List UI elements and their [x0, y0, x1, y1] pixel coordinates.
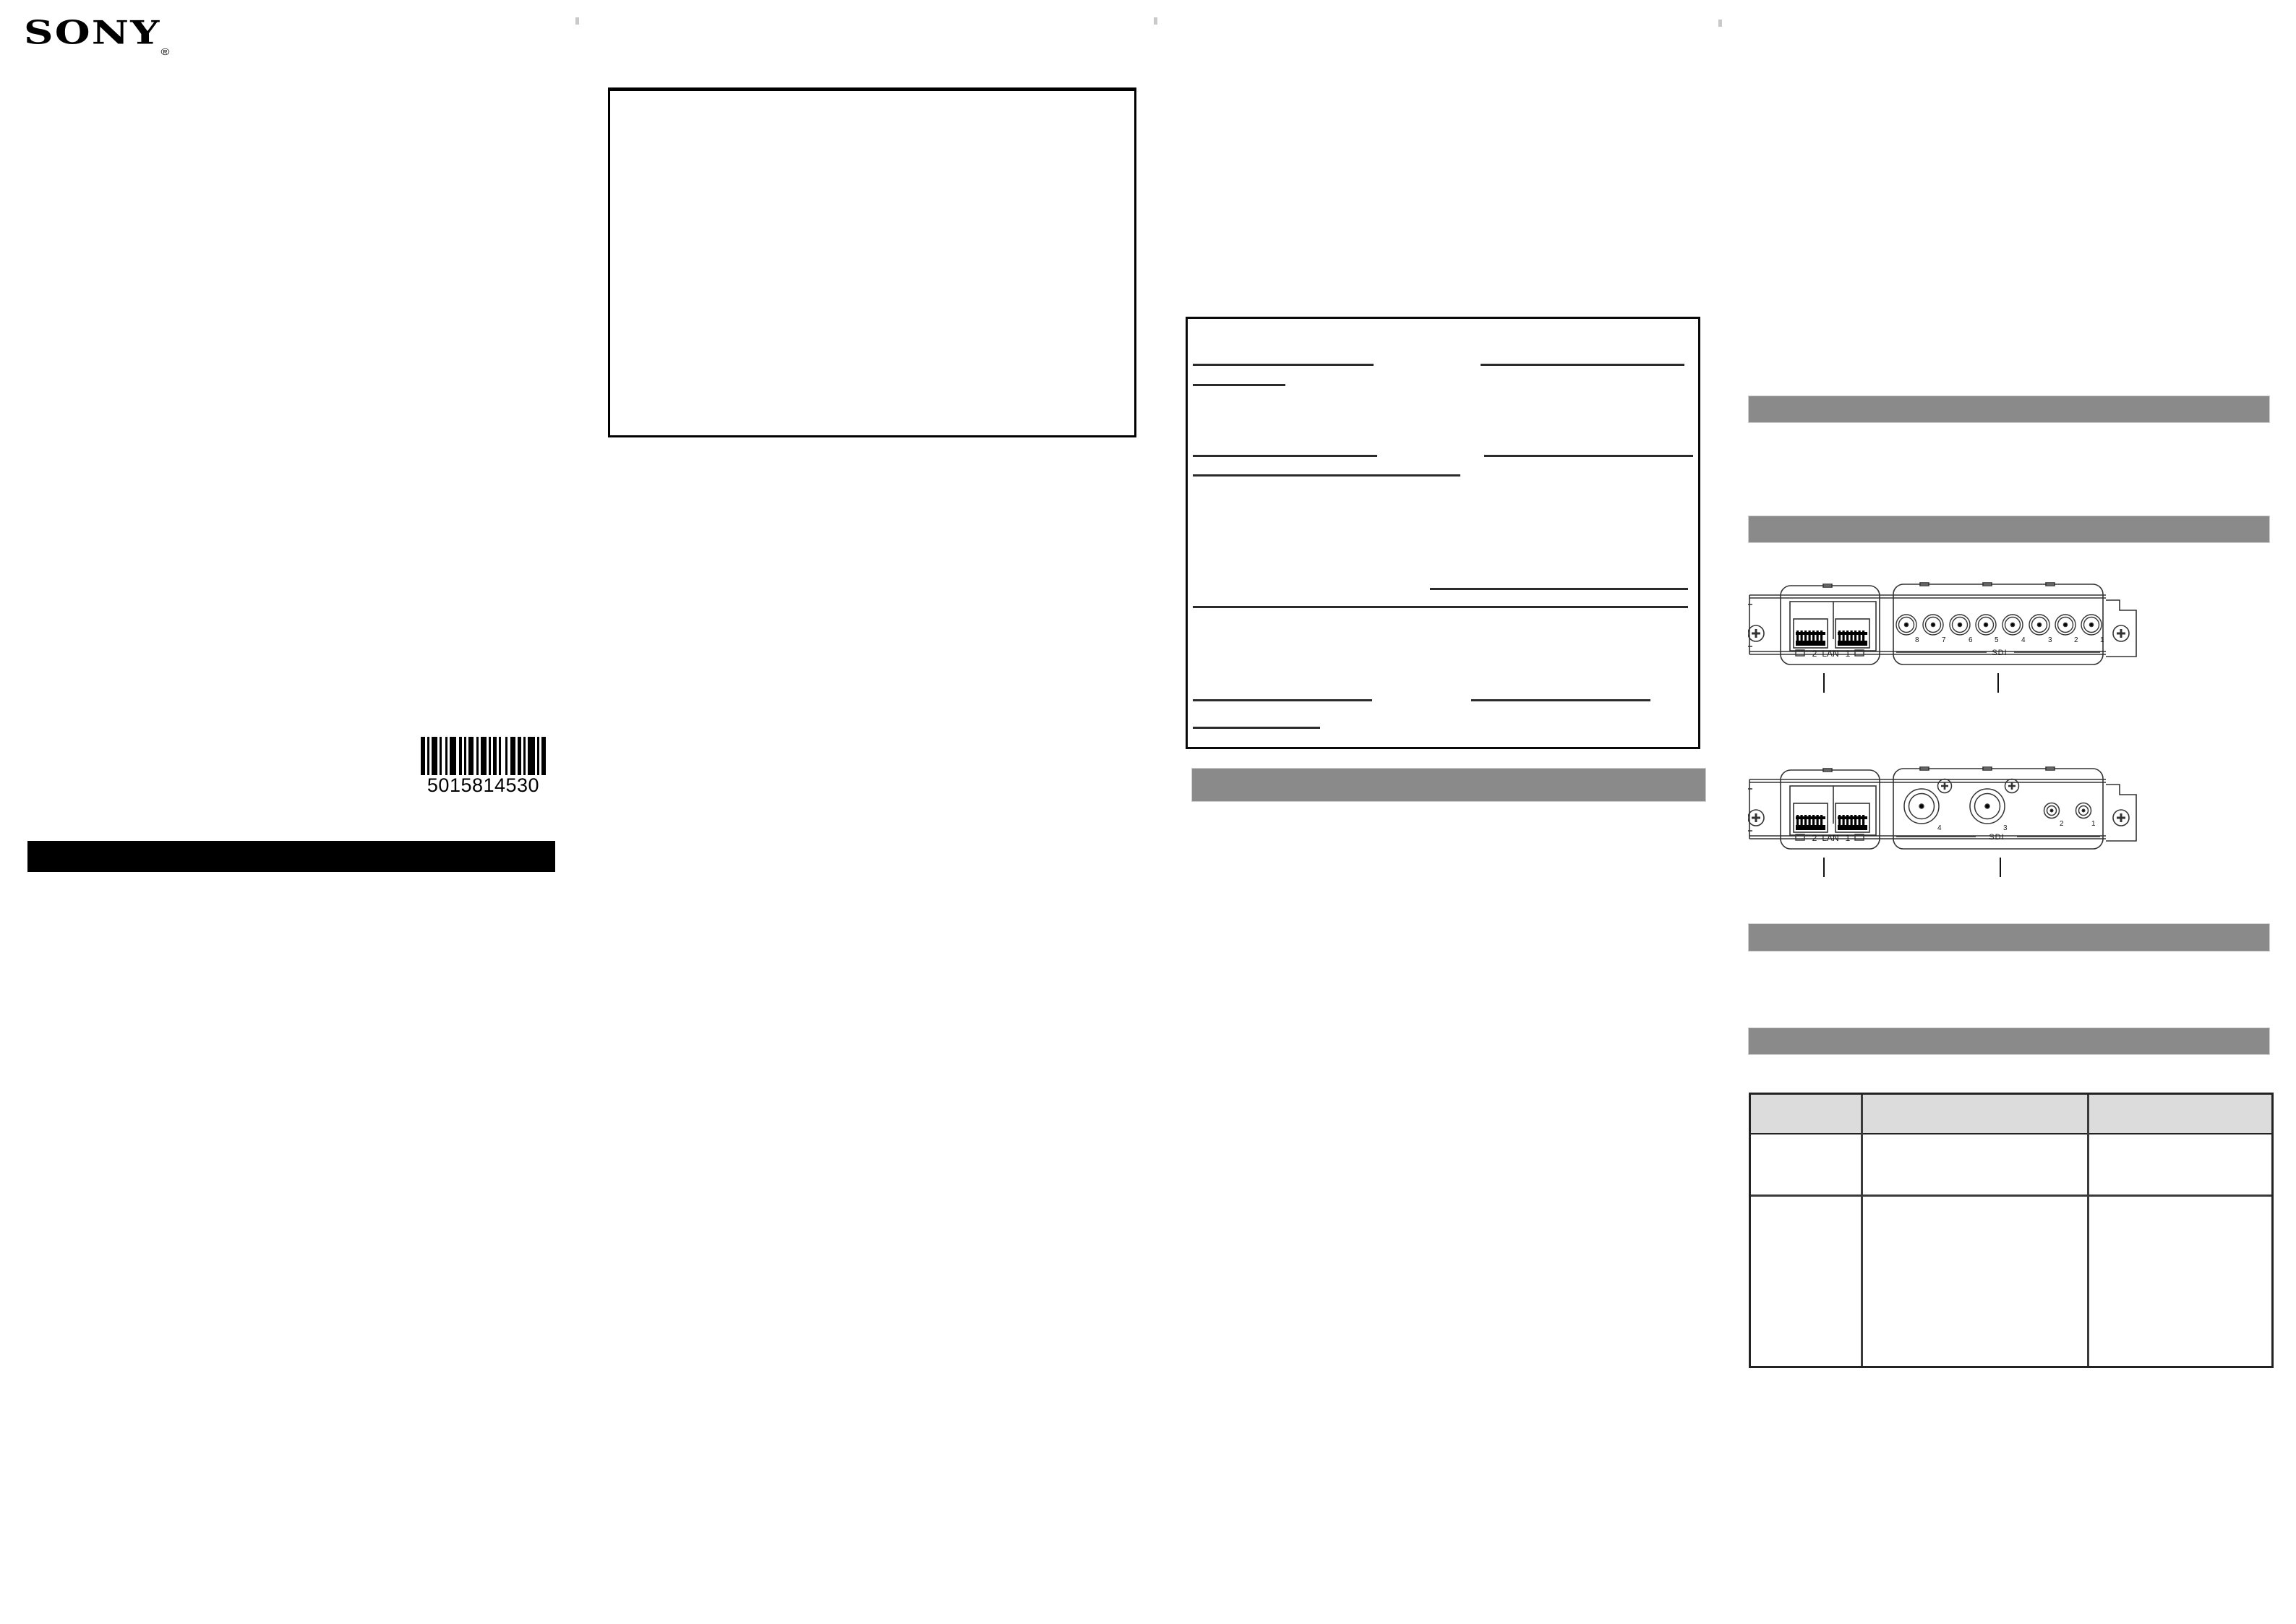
print-registration-mark	[1718, 20, 1722, 27]
svg-text:1: 1	[2100, 636, 2104, 644]
svg-text:4: 4	[1937, 824, 1942, 832]
spec-table	[1749, 1093, 2274, 1368]
barcode-number: 5015814530	[421, 775, 546, 795]
form-blank-line	[1484, 455, 1693, 457]
svg-text:6: 6	[1969, 636, 1973, 644]
svg-text:8: 8	[1915, 636, 1919, 644]
sdi-label: SDI	[1992, 649, 2007, 657]
svg-text:1: 1	[2091, 820, 2096, 828]
section-heading-bar	[1191, 768, 1706, 802]
rear-panel-diagram-4ch: 2 LAN 1 4 3 2 1 SDI	[1748, 761, 2147, 881]
barcode-bar	[468, 737, 473, 775]
barcode-bar	[541, 737, 546, 775]
form-blank-line	[1193, 384, 1285, 386]
barcode-bar	[528, 737, 534, 775]
spec-table-row-divider	[1751, 1195, 2271, 1197]
lan-label: LAN	[1822, 649, 1838, 659]
form-blank-line	[1430, 588, 1688, 590]
form-blank-line	[1193, 364, 1374, 366]
barcode-bar	[493, 737, 497, 775]
barcode-bar	[537, 737, 539, 775]
form-blank-line	[1193, 699, 1372, 701]
svg-text:4: 4	[2021, 636, 2026, 644]
print-registration-mark	[1154, 17, 1157, 25]
barcode-bar	[489, 737, 491, 775]
barcode-bar	[440, 737, 442, 775]
redacted-title-bar	[27, 841, 555, 872]
lan-label: LAN	[1822, 833, 1838, 843]
form-blank-line	[1193, 727, 1320, 729]
sony-logo: SONY®	[24, 19, 170, 48]
sdi-label: SDI	[1989, 833, 2004, 842]
empty-frame-box	[608, 87, 1136, 437]
lan-port-2-number: 2	[1812, 649, 1817, 659]
lan-port-1-number: 1	[1846, 833, 1851, 843]
rj45-pins	[1796, 815, 1867, 830]
registered-trademark-icon: ®	[161, 47, 170, 58]
bnc-connectors	[1896, 615, 2102, 635]
barcode-bar	[421, 737, 425, 775]
section-heading-bar	[1748, 1027, 2270, 1055]
svg-text:2: 2	[2060, 820, 2064, 828]
lan-port-2-number: 2	[1812, 833, 1817, 843]
section-heading-bar	[1748, 923, 2270, 952]
form-blank-line	[1481, 364, 1684, 366]
svg-text:3: 3	[2048, 636, 2052, 644]
barcode-bar	[432, 737, 437, 775]
section-heading-bar	[1748, 516, 2270, 543]
warranty-form-box	[1186, 317, 1700, 749]
spec-table-column-divider	[1861, 1095, 1863, 1366]
svg-text:5: 5	[1995, 636, 1999, 644]
form-blank-line	[1193, 455, 1377, 457]
sony-logo-text: SONY	[24, 14, 161, 51]
document-page: SONY®	[0, 0, 2296, 1624]
barcode-bar	[459, 737, 463, 775]
barcode-bar	[510, 737, 516, 775]
rear-panel-diagram-8ch: 2 LAN 1 8 7 6 5 4 3 2 1 SDI	[1748, 577, 2147, 696]
svg-text:2: 2	[2074, 636, 2078, 644]
spec-table-header-row	[1751, 1095, 2271, 1134]
bnc-connectors	[1904, 779, 2091, 824]
barcode-bar	[464, 737, 466, 775]
form-blank-line	[1471, 699, 1650, 701]
barcode-bar	[499, 737, 501, 775]
form-blank-line	[1193, 606, 1688, 608]
form-blank-line	[1193, 474, 1460, 476]
barcode-bar	[481, 737, 487, 775]
bnc-numbers: 4 3 2 1	[1937, 820, 2096, 832]
barcode-bar	[427, 737, 429, 775]
barcode-bar	[518, 737, 521, 775]
barcode-bar	[450, 737, 456, 775]
print-registration-mark	[575, 17, 579, 25]
section-heading-bar	[1748, 396, 2270, 423]
lan-port-labels: 2 LAN 1	[1796, 833, 1864, 843]
barcode-bar	[476, 737, 479, 775]
rj45-pins	[1796, 631, 1867, 646]
svg-text:7: 7	[1942, 636, 1946, 644]
barcode-bar	[523, 737, 526, 775]
lan-port-labels: 2 LAN 1	[1796, 649, 1864, 659]
lan-port-1-number: 1	[1846, 649, 1851, 659]
spec-table-column-divider	[2087, 1095, 2089, 1366]
svg-text:3: 3	[2003, 824, 2008, 832]
barcode	[421, 737, 546, 775]
barcode-bar	[505, 737, 507, 775]
bnc-numbers: 8 7 6 5 4 3 2 1	[1915, 636, 2104, 644]
barcode-bar	[445, 737, 447, 775]
